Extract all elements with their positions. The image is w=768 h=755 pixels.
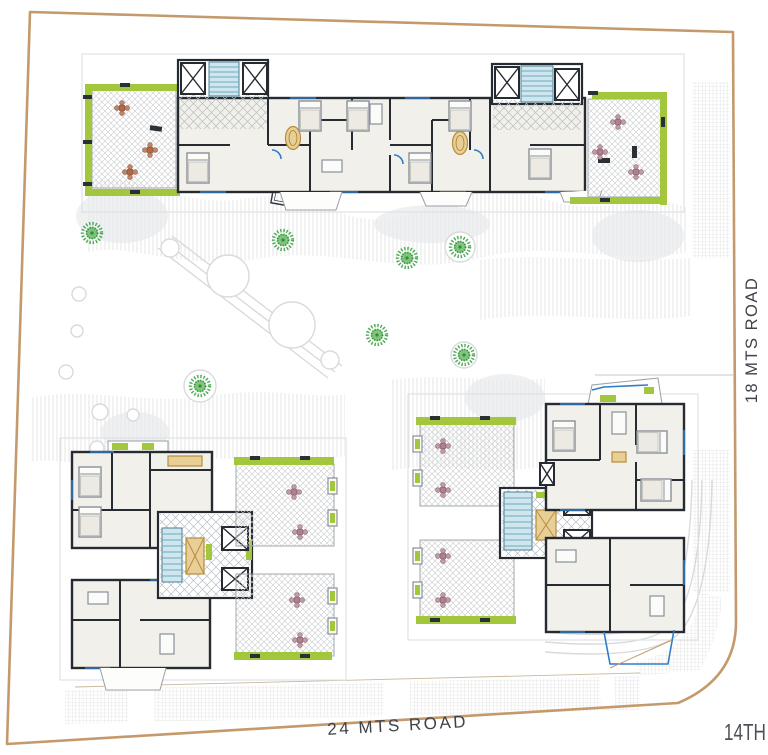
elevator-x-icon	[181, 63, 205, 94]
bed	[449, 101, 471, 131]
terrace-northwest	[83, 83, 180, 196]
road-east-surface-upper	[692, 82, 730, 258]
elevator-x-icon	[555, 69, 579, 100]
elevator-x-icon	[540, 463, 554, 485]
road-label-east: 18 MTS ROAD	[743, 277, 761, 404]
site-plan-page: 24 MTS ROAD 18 MTS ROAD 14TH	[0, 0, 768, 755]
road-label-corner: 14TH	[724, 719, 766, 745]
bed	[529, 149, 551, 179]
bed	[347, 101, 369, 131]
tree-icon	[368, 326, 387, 345]
kitchen-counter	[612, 452, 626, 462]
bed	[299, 101, 321, 131]
landscape-band-east	[480, 257, 690, 320]
bed	[187, 153, 209, 183]
sw-terrace-1	[234, 456, 337, 546]
landscape-blob	[592, 210, 684, 262]
stairs-icon	[521, 66, 553, 102]
stair-core-west	[178, 60, 268, 129]
bed	[641, 479, 671, 501]
bed	[637, 431, 667, 453]
landscape-blob	[374, 205, 490, 243]
bed	[79, 507, 101, 537]
stairs-icon	[504, 492, 532, 550]
elevator-x-icon	[243, 63, 267, 94]
bed	[79, 467, 101, 497]
bed	[553, 421, 575, 451]
landscape-blob	[465, 374, 545, 422]
elevator-x-icon	[495, 67, 519, 98]
kitchen-counter	[168, 456, 202, 466]
road-crossing	[599, 664, 616, 707]
road-crossing	[383, 676, 411, 721]
building-southeast	[408, 378, 698, 668]
stair-core-east	[492, 64, 582, 130]
stairs-icon	[162, 528, 182, 582]
building-southwest	[60, 438, 346, 690]
stairs-icon	[209, 62, 239, 96]
sw-terrace-2	[234, 574, 337, 660]
balcony	[100, 668, 166, 690]
building-north	[82, 54, 684, 212]
bed	[409, 153, 431, 183]
site-plan-canvas: 24 MTS ROAD 18 MTS ROAD 14TH	[0, 0, 768, 755]
